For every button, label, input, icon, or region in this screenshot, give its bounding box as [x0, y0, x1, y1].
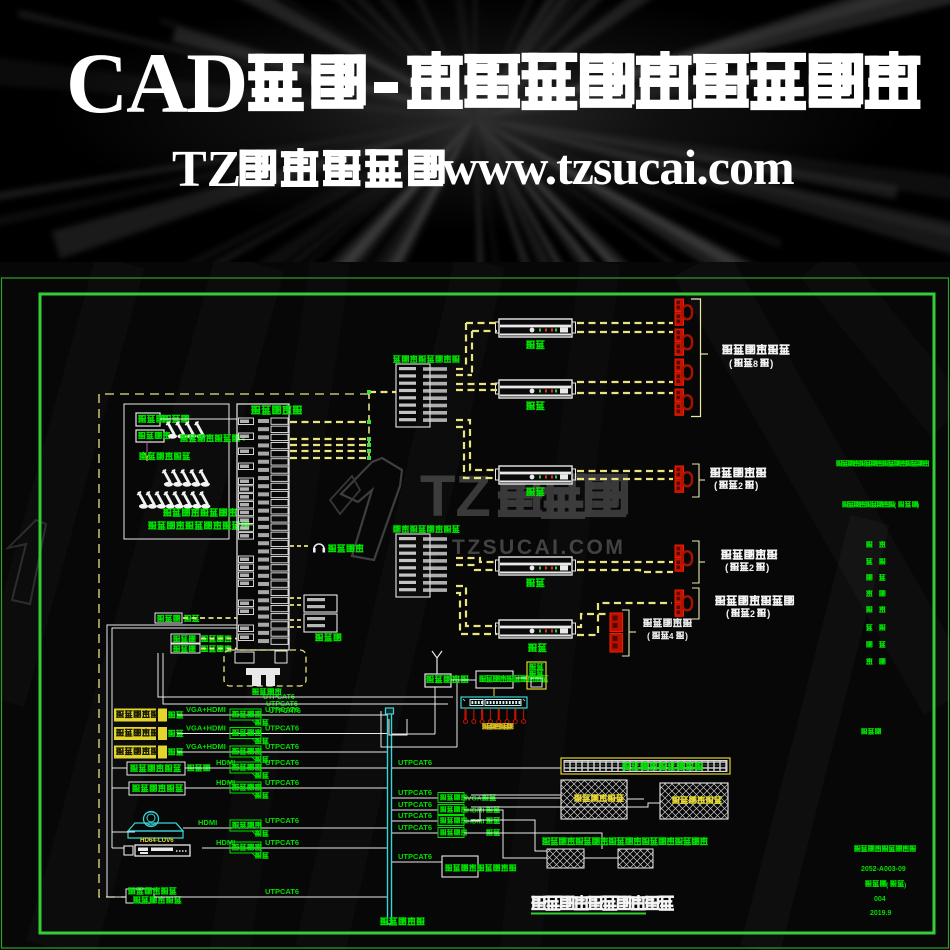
svg-text:VGA+HDMI: VGA+HDMI	[186, 724, 226, 733]
svg-text:UTPCAT6: UTPCAT6	[265, 838, 299, 847]
svg-text:): )	[685, 631, 688, 641]
svg-text:TZ: TZ	[172, 141, 241, 198]
svg-text:4: 4	[669, 632, 674, 641]
svg-text:2: 2	[738, 481, 743, 491]
svg-text:VGA+HDMI: VGA+HDMI	[186, 705, 226, 714]
svg-text:2052-A003-09: 2052-A003-09	[861, 866, 906, 873]
svg-text:UTPCAT6: UTPCAT6	[265, 758, 299, 767]
svg-text:): )	[917, 502, 919, 509]
svg-text:2019.9: 2019.9	[870, 910, 892, 917]
svg-text:TZ: TZ	[420, 464, 491, 529]
svg-text:VGA+HDMI: VGA+HDMI	[186, 742, 226, 751]
svg-text:2: 2	[750, 609, 755, 619]
svg-text:UTPCAT6: UTPCAT6	[265, 816, 299, 825]
svg-text:): )	[766, 563, 769, 574]
svg-text:UTPCAT6: UTPCAT6	[265, 742, 299, 751]
svg-text:UTPCAT6: UTPCAT6	[398, 823, 432, 832]
svg-text:2: 2	[749, 563, 754, 573]
svg-text:www.tzsucai.com: www.tzsucai.com	[442, 139, 794, 195]
svg-text:HDMI: HDMI	[198, 818, 217, 827]
svg-text:TZSUCAI.COM: TZSUCAI.COM	[452, 536, 625, 559]
svg-text:): )	[904, 882, 906, 889]
svg-text:): )	[755, 481, 758, 492]
svg-text:HD64-LUV6: HD64-LUV6	[140, 837, 174, 844]
svg-text:CAD: CAD	[66, 35, 246, 131]
svg-text:VGA: VGA	[467, 796, 482, 803]
svg-text:8: 8	[753, 359, 758, 369]
svg-text:UTPCAT6: UTPCAT6	[398, 758, 432, 767]
svg-text:UTPCAT6: UTPCAT6	[265, 887, 299, 896]
svg-text:UTPCAT6: UTPCAT6	[265, 724, 299, 733]
svg-text:UTPCAT6: UTPCAT6	[398, 811, 432, 820]
svg-text:UTPCAT6: UTPCAT6	[265, 778, 299, 787]
svg-text:(: (	[647, 631, 650, 641]
svg-text:UTPCAT6: UTPCAT6	[265, 705, 299, 714]
svg-text:HDMI: HDMI	[467, 808, 484, 815]
svg-text:): )	[770, 359, 773, 370]
svg-text:004: 004	[874, 896, 886, 903]
svg-text:UTPCAT6: UTPCAT6	[398, 788, 432, 797]
svg-text:UTPCAT6: UTPCAT6	[398, 852, 432, 861]
svg-text:): )	[767, 609, 770, 620]
svg-text:UTPCAT6: UTPCAT6	[398, 800, 432, 809]
